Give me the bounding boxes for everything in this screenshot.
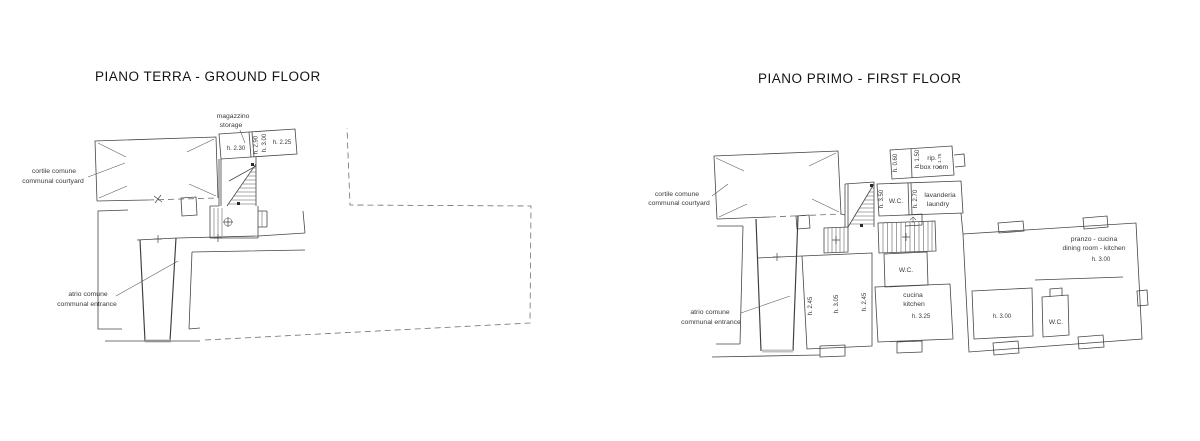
floor-plan-sheet: PIANO TERRA - GROUND FLOOR cortile comun… bbox=[0, 0, 1200, 441]
ground-entrance-label-it: atrio comune bbox=[68, 291, 108, 298]
first-courtyard-label-en: communal courtyard bbox=[648, 200, 710, 207]
first-height-060: h. 0.60 bbox=[893, 153, 899, 172]
first-box-room: h. 0.60 h. 1.50 h. 1.75 rip. box room bbox=[890, 146, 965, 179]
first-box-room-label-en: box room bbox=[920, 164, 949, 171]
ground-entrance-label-en: communal entrance bbox=[57, 301, 117, 308]
ground-floor-plan: PIANO TERRA - GROUND FLOOR cortile comun… bbox=[22, 69, 531, 343]
first-laundry-label-it: lavanderia bbox=[924, 192, 956, 199]
first-height-300-dining: h. 3.00 bbox=[1092, 257, 1111, 263]
first-courtyard-label-it: cortile comune bbox=[655, 191, 699, 198]
first-entrance-label-en: communal entrance bbox=[681, 319, 741, 326]
ground-storage-label-it: magazzino bbox=[217, 113, 250, 120]
first-entrance-label-it: atrio comune bbox=[690, 309, 730, 316]
ground-courtyard-label-en: communal courtyard bbox=[22, 178, 84, 185]
first-floor-plan: PIANO PRIMO - FIRST FLOOR cortile comune… bbox=[648, 71, 1148, 357]
floor-plan-drawing: PIANO TERRA - GROUND FLOOR cortile comun… bbox=[0, 0, 1200, 441]
first-height-325: h. 3.25 bbox=[912, 314, 931, 320]
first-height-245b: h. 2.45 bbox=[862, 292, 868, 311]
first-dining-room: pranzo - cucina dining room - kitchen h.… bbox=[961, 213, 1148, 355]
ground-height-290: h. 2.90 bbox=[254, 135, 260, 154]
first-height-270: h. 2.70 bbox=[913, 189, 919, 208]
first-laundry-block: h. 3.50 W.C. h. 2.70 lavanderia laundry bbox=[877, 181, 963, 226]
first-wc-top-label: W.C. bbox=[889, 198, 903, 205]
first-laundry-label-en: laundry bbox=[927, 201, 950, 208]
ground-storage-label-en: storage bbox=[220, 122, 243, 129]
ground-height-225: h. 2.25 bbox=[273, 140, 292, 146]
ground-storage-room: magazzino storage h. 2.30 h. 2.90 h. 3.0… bbox=[217, 113, 297, 159]
first-wc-mid-label: W.C. bbox=[899, 267, 913, 274]
first-height-350: h. 3.50 bbox=[879, 189, 885, 208]
first-entrance-hall: atrio comune communal entrance bbox=[681, 216, 820, 357]
ground-floor-title: PIANO TERRA - GROUND FLOOR bbox=[95, 69, 321, 84]
ground-courtyard-label-it: cortile comune bbox=[32, 168, 76, 175]
first-wc-right-label: W.C. bbox=[1049, 319, 1063, 326]
first-height-245a: h. 2.45 bbox=[808, 296, 814, 315]
ground-staircase bbox=[210, 157, 267, 238]
first-height-305: h. 3.05 bbox=[834, 294, 840, 313]
first-box-room-label-it: rip. bbox=[927, 155, 937, 162]
first-floor-title: PIANO PRIMO - FIRST FLOOR bbox=[758, 71, 962, 86]
first-kitchen-block: W.C. cucina kitchen h. 3.25 bbox=[875, 252, 953, 353]
first-dining-label-en: dining room - kitchen bbox=[1062, 245, 1125, 252]
ground-height-230: h. 2.30 bbox=[227, 146, 246, 152]
first-kitchen-label-it: cucina bbox=[903, 292, 923, 299]
ground-courtyard-label: cortile comune communal courtyard bbox=[22, 163, 125, 185]
first-dining-label-it: pranzo - cucina bbox=[1071, 236, 1118, 243]
first-height-300-room: h. 3.00 bbox=[993, 314, 1012, 320]
ground-height-300: h. 3.00 bbox=[262, 133, 268, 152]
first-courtyard-outline bbox=[714, 151, 845, 229]
ground-dashed-boundary bbox=[205, 128, 531, 340]
ground-courtyard-outline bbox=[95, 137, 218, 216]
first-kitchen-label-en: kitchen bbox=[903, 301, 925, 308]
first-left-rooms: h. 2.45 h. 3.05 h. 2.45 bbox=[802, 253, 872, 357]
ground-entrance-hall: atrio comune communal entrance bbox=[57, 210, 305, 343]
